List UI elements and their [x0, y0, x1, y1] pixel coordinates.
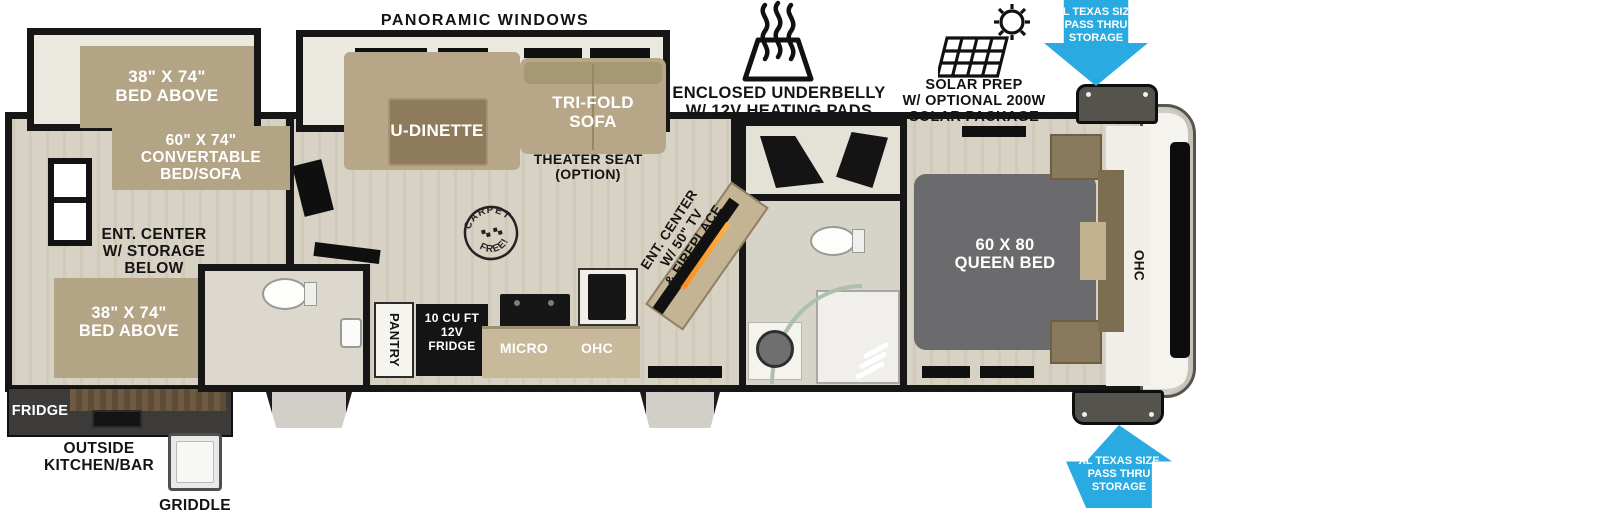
cooktop-knob-2 [548, 300, 554, 306]
underbelly-line2: W/ 12V HEATING PADS [654, 102, 904, 120]
rv-floorplan: 38" X 74" BED ABOVE 60" X 74" CONVERTABL… [0, 0, 1600, 525]
u-dinette-text: U-DINETTE [357, 122, 517, 141]
solar-line2: W/ OPTIONAL 200W [878, 94, 1070, 110]
window-bedroom-bottom-1 [922, 366, 970, 378]
slide-window-3 [524, 48, 582, 58]
panoramic-windows-label: PANORAMIC WINDOWS [360, 12, 610, 30]
window-bedroom-bottom-2 [980, 366, 1034, 378]
pantry-label: PANTRY [374, 302, 414, 378]
bedroom-ohc-label: OHC [1126, 230, 1150, 300]
cooktop-knob-1 [514, 300, 520, 306]
hatch-rivet [1082, 412, 1087, 417]
window-bunk-left-divider [54, 197, 86, 203]
queen-bed-label: 60 X 80 QUEEN BED [914, 236, 1096, 272]
bunk-ent-line2: W/ STORAGE [70, 243, 238, 260]
solar-line1: SOLAR PREP [878, 78, 1070, 94]
bedroom-wardrobe-top [1050, 134, 1102, 180]
front-toilet-tank [852, 229, 865, 253]
convertible-line1: 60" X 74" [112, 132, 290, 149]
fridge-12v-label: 10 CU FT 12V FRIDGE [416, 312, 488, 353]
bunk-ent-line3: BELOW [70, 260, 238, 277]
bunk-top-line1: 38" X 74" [80, 68, 254, 87]
entry-step-main [640, 392, 720, 428]
fridge-line1: 10 CU FT [416, 312, 488, 326]
svg-text:FREE!: FREE! [476, 234, 514, 259]
tri-fold-line2: SOFA [520, 113, 666, 132]
fridge-line2: 12V [416, 326, 488, 340]
rear-toilet-tank [304, 282, 317, 306]
pass-thru-bottom-line2: PASS THRU [1066, 468, 1172, 481]
queen-line2: QUEEN BED [914, 254, 1096, 272]
outside-kitchen-sink [92, 410, 142, 428]
bedroom-ohc-text: OHC [1131, 250, 1146, 281]
outside-fridge-text: FRIDGE [8, 404, 72, 420]
entry-step-rear [266, 392, 352, 428]
solar-label: SOLAR PREP W/ OPTIONAL 200W SOLAR PACKAG… [878, 78, 1070, 126]
bedroom-wardrobe-bottom [1050, 320, 1102, 364]
tri-fold-line1: TRI-FOLD [520, 94, 666, 113]
stamp-text-bottom: FREE! [476, 234, 514, 259]
front-toilet [810, 226, 856, 256]
bunk-bottom-line2: BED ABOVE [54, 322, 204, 340]
bunk-ent-center-label: ENT. CENTER W/ STORAGE BELOW [70, 226, 238, 277]
outside-kitchen-counter [70, 389, 226, 411]
hatch-rivet [1149, 412, 1154, 417]
outside-line2: KITCHEN/BAR [4, 457, 194, 474]
slide-window-4 [590, 48, 650, 58]
bunk-bottom-label: 38" X 74" BED ABOVE [54, 304, 204, 340]
kitchen-ohc-label: OHC [566, 341, 628, 356]
pass-thru-top-line3: STORAGE [1044, 32, 1148, 45]
outside-kitchen-label: OUTSIDE KITCHEN/BAR [4, 440, 194, 474]
pantry-text: PANTRY [387, 313, 401, 367]
window-bedroom-top [962, 126, 1026, 137]
pass-thru-hatch-top [1076, 84, 1158, 124]
front-cap-window [1170, 142, 1190, 358]
pass-thru-top-line1: XL TEXAS SIZE [1044, 6, 1148, 19]
tri-fold-label: TRI-FOLD SOFA [520, 94, 666, 131]
kitchen-ohc-text: OHC [566, 341, 628, 356]
bunk-top-label: 38" X 74" BED ABOVE [80, 68, 254, 105]
micro-label: MICRO [486, 341, 562, 356]
griddle-text: GRIDDLE [150, 497, 240, 514]
u-dinette-label: U-DINETTE [357, 122, 517, 141]
queen-line1: 60 X 80 [914, 236, 1096, 254]
bunk-ent-line1: ENT. CENTER [70, 226, 238, 243]
bunk-top-line2: BED ABOVE [80, 87, 254, 106]
cooktop [500, 294, 570, 328]
heating-pad-icon [738, 0, 816, 84]
closet [739, 119, 907, 201]
outside-line1: OUTSIDE [4, 440, 194, 457]
convertible-line3: BED/SOFA [112, 166, 290, 183]
hatch-rivet [1086, 92, 1091, 97]
underbelly-line1: ENCLOSED UNDERBELLY [654, 84, 904, 102]
rear-toilet [262, 278, 308, 310]
pass-thru-top-line2: PASS THRU [1044, 19, 1148, 32]
pass-thru-bottom-line3: STORAGE [1066, 481, 1172, 494]
solar-line3: SOLAR PACKAGE [878, 110, 1070, 126]
outside-fridge-label: FRIDGE [8, 404, 72, 420]
window-living-bottom [648, 366, 722, 378]
pass-thru-hatch-bottom [1072, 390, 1164, 425]
hatch-rivet [1143, 92, 1148, 97]
griddle-label: GRIDDLE [150, 497, 240, 514]
stamp-pattern [481, 225, 503, 239]
rear-sink [340, 318, 362, 348]
panoramic-windows-text: PANORAMIC WINDOWS [360, 12, 610, 30]
pass-thru-bottom-line1: XL TEXAS SIZE [1066, 455, 1172, 468]
washer-drum [756, 330, 794, 368]
convertible-label: 60" X 74" CONVERTABLE BED/SOFA [112, 132, 290, 183]
fridge-line3: FRIDGE [416, 340, 488, 354]
convertible-line2: CONVERTABLE [112, 149, 290, 166]
micro-text: MICRO [486, 341, 562, 356]
bunk-bottom-line1: 38" X 74" [54, 304, 204, 322]
underbelly-label: ENCLOSED UNDERBELLY W/ 12V HEATING PADS [654, 84, 904, 120]
pass-thru-arrow-top: XL TEXAS SIZE PASS THRU STORAGE [1044, 0, 1148, 86]
pass-thru-arrow-bottom: XL TEXAS SIZE PASS THRU STORAGE [1066, 425, 1172, 508]
solar-panel-icon [938, 2, 1034, 78]
